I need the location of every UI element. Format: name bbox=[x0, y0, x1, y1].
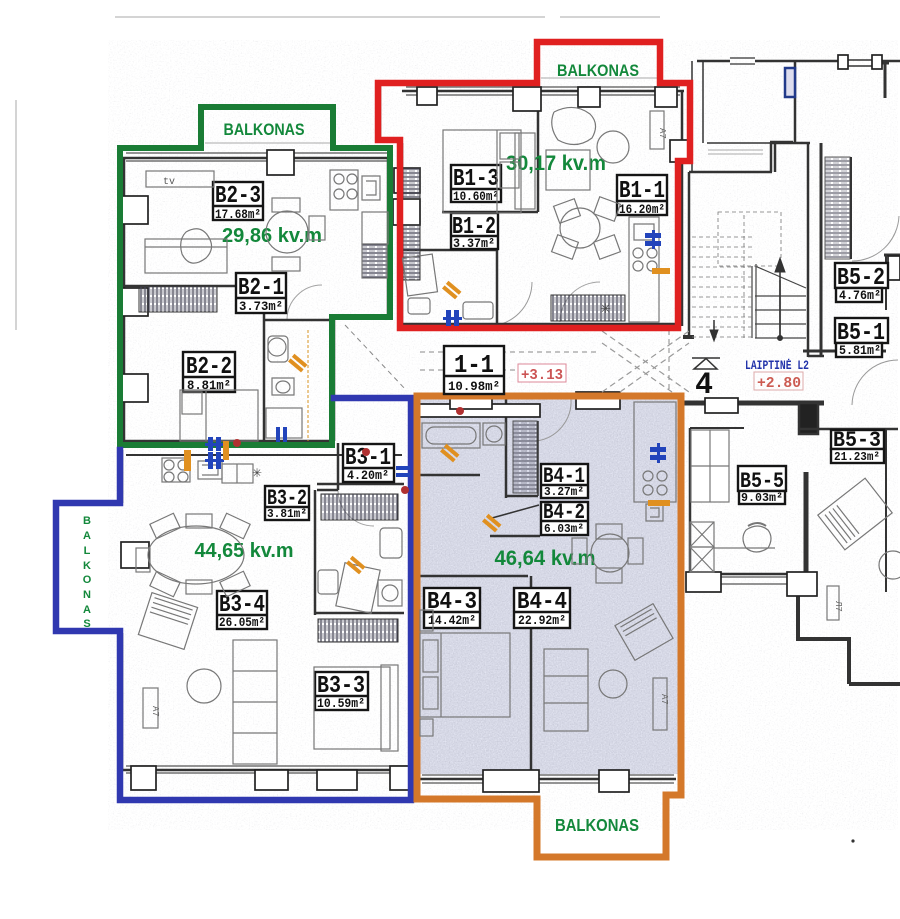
svg-text:46,64 kv.m: 46,64 kv.m bbox=[495, 547, 596, 570]
svg-text:N: N bbox=[83, 589, 91, 601]
svg-text:A7: A7 bbox=[659, 694, 669, 705]
svg-text:8.81m²: 8.81m² bbox=[187, 378, 231, 393]
svg-text:4: 4 bbox=[696, 367, 713, 400]
svg-text:1-1: 1-1 bbox=[454, 350, 494, 380]
svg-text:29,86 kv.m: 29,86 kv.m bbox=[222, 225, 322, 247]
svg-text:O: O bbox=[83, 574, 92, 586]
svg-text:21.23m²: 21.23m² bbox=[834, 450, 880, 464]
svg-text:4.76m²: 4.76m² bbox=[839, 288, 881, 303]
svg-text:9.03m²: 9.03m² bbox=[741, 491, 783, 505]
svg-text:B1-1: B1-1 bbox=[619, 178, 665, 205]
svg-text:14.42m²: 14.42m² bbox=[428, 613, 476, 628]
svg-text:A: A bbox=[83, 604, 91, 616]
svg-text:4.20m²: 4.20m² bbox=[347, 468, 389, 483]
svg-text:B2-1: B2-1 bbox=[238, 275, 284, 302]
svg-text:10.60m²: 10.60m² bbox=[453, 189, 499, 204]
svg-text:B4-4: B4-4 bbox=[517, 589, 567, 616]
svg-text:L: L bbox=[84, 545, 91, 557]
svg-text:A7: A7 bbox=[657, 128, 667, 139]
svg-text:17.68m²: 17.68m² bbox=[215, 207, 261, 222]
svg-text:3.37m²: 3.37m² bbox=[453, 236, 495, 251]
svg-text:10.98m²: 10.98m² bbox=[448, 379, 500, 394]
svg-text:A: A bbox=[83, 530, 91, 542]
svg-text:Л7: Л7 bbox=[833, 600, 843, 612]
svg-text:A7: A7 bbox=[150, 706, 160, 717]
svg-text:+3.13: +3.13 bbox=[521, 367, 563, 384]
svg-text:6.03m²: 6.03m² bbox=[544, 522, 584, 536]
svg-text:B4-3: B4-3 bbox=[427, 589, 477, 616]
svg-text:BALKONAS: BALKONAS bbox=[557, 61, 639, 80]
svg-text:16.20m²: 16.20m² bbox=[619, 202, 665, 217]
svg-text:✳: ✳ bbox=[600, 301, 611, 316]
svg-text:5.81m²: 5.81m² bbox=[839, 343, 881, 358]
svg-text:3.73m²: 3.73m² bbox=[239, 299, 283, 314]
svg-text:3.81m²: 3.81m² bbox=[267, 507, 307, 521]
svg-text:K: K bbox=[83, 560, 91, 572]
svg-text:10.59m²: 10.59m² bbox=[317, 696, 365, 711]
svg-text:✳: ✳ bbox=[252, 466, 262, 480]
svg-text:LAIPTINĖ L2: LAIPTINĖ L2 bbox=[745, 358, 809, 373]
svg-text:BALKONAS: BALKONAS bbox=[555, 815, 639, 835]
svg-text:S: S bbox=[83, 618, 90, 630]
svg-text:B2-3: B2-3 bbox=[215, 183, 261, 210]
svg-text:26.05m²: 26.05m² bbox=[219, 615, 265, 630]
svg-text:tv: tv bbox=[163, 177, 175, 188]
svg-text:B2-2: B2-2 bbox=[186, 354, 232, 381]
svg-text:22.92m²: 22.92m² bbox=[518, 613, 566, 628]
svg-text:BALKONAS: BALKONAS bbox=[224, 120, 305, 139]
svg-text:3.27m²: 3.27m² bbox=[544, 485, 584, 499]
svg-text:B: B bbox=[83, 515, 91, 527]
svg-text:+2.80: +2.80 bbox=[757, 375, 801, 392]
